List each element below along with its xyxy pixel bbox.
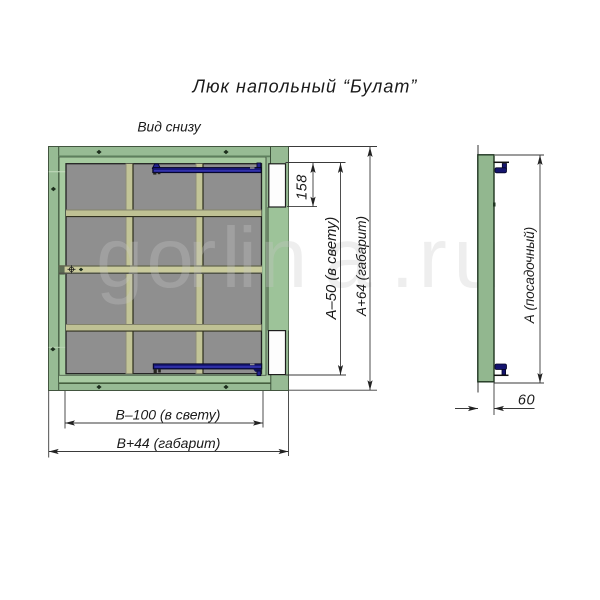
svg-text:158: 158 (295, 174, 311, 200)
svg-text:Вид снизу: Вид снизу (137, 120, 201, 135)
svg-text:А (посадочный): А (посадочный) (522, 227, 537, 324)
svg-text:gorlina.ru: gorlina.ru (96, 211, 501, 306)
svg-text:60: 60 (518, 393, 535, 409)
svg-text:В–100 (в свету): В–100 (в свету) (116, 407, 221, 423)
svg-text:Люк напольный “Булат”: Люк напольный “Булат” (192, 77, 418, 97)
svg-text:А+64 (габарит): А+64 (габарит) (354, 216, 369, 317)
svg-text:А–50 (в свету): А–50 (в свету) (324, 217, 340, 321)
svg-text:В+44 (габарит): В+44 (габарит) (117, 435, 221, 451)
